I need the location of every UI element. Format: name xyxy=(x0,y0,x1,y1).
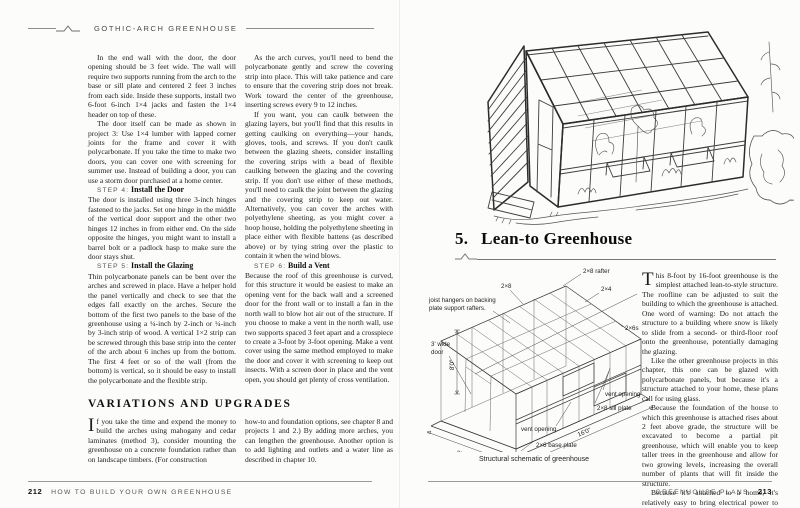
book-title: HOW TO BUILD YOUR OWN GREENHOUSE xyxy=(51,489,232,496)
book-spread: GOTHIC-ARCH GREENHOUSE In the end wall w… xyxy=(0,0,800,508)
folio-left: 212 HOW TO BUILD YOUR OWN GREENHOUSE xyxy=(28,481,372,496)
paragraph: As the arch curves, you'll need to bend … xyxy=(245,53,393,110)
label-rafter: 2×8 rafter xyxy=(583,268,610,275)
section-heading: VARIATIONS AND UPGRADES xyxy=(88,398,393,410)
step-label: STEP 4: xyxy=(97,187,129,194)
step-label: STEP 6: xyxy=(254,263,286,270)
paragraph: Thin polycarbonate panels can be bent ov… xyxy=(88,272,236,385)
shrub xyxy=(749,42,794,204)
paragraph: Because the foundation of the house to w… xyxy=(642,403,778,488)
paragraph: The door itself can be made as shown in … xyxy=(88,119,236,185)
drop-cap: T xyxy=(642,271,656,287)
step-heading: STEP 6: Build a Vent xyxy=(245,261,393,271)
paragraph: Like the other greenhouse projects in th… xyxy=(642,356,778,403)
rule-segment xyxy=(246,28,374,29)
structural-schematic: 2×8 rafter 2×8 2×4 2×6s joist hangers on… xyxy=(413,264,655,452)
front-wall xyxy=(558,97,748,207)
label-base: 2×6 base plate xyxy=(536,442,577,449)
schematic-labels: 2×8 rafter 2×8 2×4 2×6s joist hangers on… xyxy=(428,268,641,452)
label-joist-2: plate support rafters. xyxy=(429,305,486,312)
arch-caret-icon xyxy=(455,252,477,260)
step-title: Build a Vent xyxy=(288,261,330,270)
folio-rule xyxy=(428,481,772,482)
chapter-rule xyxy=(455,252,776,260)
chapter-title: 5.Lean-to Greenhouse xyxy=(455,229,776,249)
left-column-1: In the end wall with the door, the door … xyxy=(88,53,236,385)
variations-column-2: how-to and foundation options, see chapt… xyxy=(245,417,393,464)
label-vent-upper: vent opening xyxy=(605,391,641,398)
running-head-title: GOTHIC-ARCH GREENHOUSE xyxy=(94,24,238,33)
left-page-body: In the end wall with the door, the door … xyxy=(88,53,393,464)
chapter-heading: 5.Lean-to Greenhouse xyxy=(455,229,776,260)
folio-rule xyxy=(28,481,372,482)
label-2x4: 2×4 xyxy=(601,286,612,293)
label-height: 8'0" xyxy=(449,360,456,370)
label-2x8: 2×8 xyxy=(501,283,512,290)
paragraph: If you take the time and expend the mone… xyxy=(88,417,236,464)
paragraph-text: f you take the time and expend the money… xyxy=(88,417,236,464)
label-depth: 8'0" xyxy=(455,450,467,452)
rule-segment xyxy=(477,259,776,260)
chapter-number: 5. xyxy=(455,229,468,248)
paragraph: Because the roof of this greenhouse is c… xyxy=(245,271,393,384)
house-siding xyxy=(488,46,528,210)
right-page-body: This 8-foot by 16-foot greenhouse is the… xyxy=(642,271,778,508)
label-sill: 2×8 sill plate xyxy=(597,405,632,412)
arch-caret-icon xyxy=(56,24,80,33)
lean-to-greenhouse-illustration xyxy=(486,4,794,228)
paragraph-text: his 8-foot by 16-foot greenhouse is the … xyxy=(642,271,778,356)
section-title: GREENHOUSE PLANS xyxy=(656,489,749,496)
schematic-caption: Structural schematic of greenhouse xyxy=(413,456,655,463)
label-joist-1: joist hangers on backing xyxy=(428,297,496,304)
right-page: 5.Lean-to Greenhouse xyxy=(400,0,800,508)
chapter-title-text: Lean-to Greenhouse xyxy=(481,229,632,248)
rule-segment xyxy=(28,28,56,29)
step-heading: STEP 5: Install the Glazing xyxy=(88,261,236,271)
interior-back-wall xyxy=(570,90,701,141)
paragraph: If you want, you can caulk between the g… xyxy=(245,110,393,261)
folio-right: GREENHOUSE PLANS 213 xyxy=(428,481,772,496)
paragraph: In the end wall with the door, the door … xyxy=(88,53,236,119)
label-door-1: 3' wide xyxy=(431,341,451,348)
end-wall-and-door xyxy=(526,51,563,207)
label-2x6s: 2×6s xyxy=(625,325,639,332)
left-column-2: As the arch curves, you'll need to bend … xyxy=(245,53,393,385)
schematic-end-wall xyxy=(441,341,516,449)
page-number: 213 xyxy=(758,487,772,496)
variations-column-1: If you take the time and expend the mone… xyxy=(88,417,236,464)
step-title: Install the Door xyxy=(131,185,184,194)
step-heading: STEP 4: Install the Door xyxy=(88,185,236,195)
running-head-left: GOTHIC-ARCH GREENHOUSE xyxy=(28,24,374,33)
page-number: 212 xyxy=(28,487,42,496)
step-label: STEP 5: xyxy=(97,263,129,270)
label-length: 16'0" xyxy=(577,427,592,439)
paragraph: The door is installed using three 3-inch… xyxy=(88,195,236,261)
label-vent-lower: vent opening xyxy=(521,426,557,433)
paragraph: how-to and foundation options, see chapt… xyxy=(245,417,393,464)
paragraph: This 8-foot by 16-foot greenhouse is the… xyxy=(642,271,778,356)
label-door-2: door xyxy=(431,349,443,356)
left-page: GOTHIC-ARCH GREENHOUSE In the end wall w… xyxy=(0,0,400,508)
ground xyxy=(494,189,748,225)
step-title: Install the Glazing xyxy=(131,261,193,270)
